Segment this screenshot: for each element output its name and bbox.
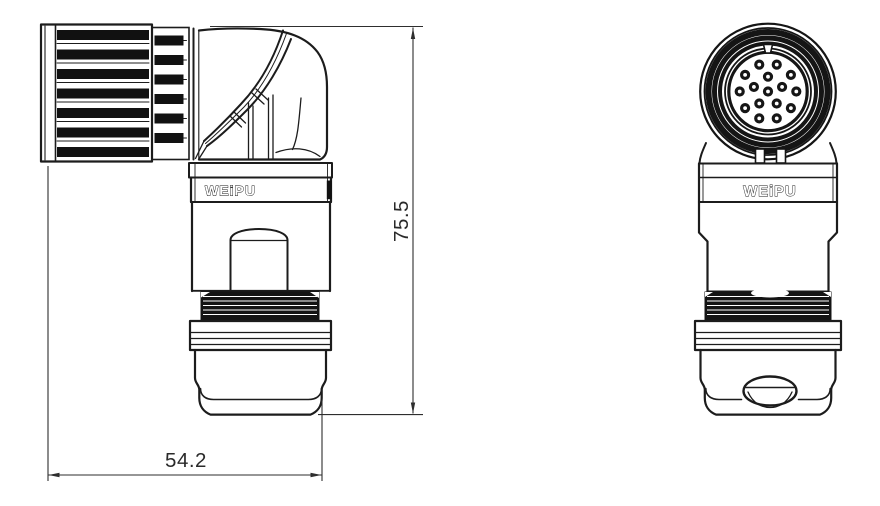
body-dome [231, 229, 288, 291]
band-notch [327, 181, 332, 200]
dim-width-label: 54.2 [165, 449, 207, 472]
weipu-logo-side: WEiPU [205, 182, 256, 198]
front-gland [701, 350, 836, 415]
dimension-width: 54.2 [48, 166, 322, 481]
coupling-nut [41, 25, 189, 162]
keying-notch [764, 45, 773, 54]
side-neck-bands: WEiPU [189, 163, 332, 202]
face-tab-right [777, 149, 786, 163]
connector-drawing: WEiPU [0, 0, 880, 506]
dimension-height: 75.5 [210, 27, 423, 415]
latch-strap [196, 31, 292, 160]
front-threads [705, 289, 831, 321]
technical-drawing-canvas: WEiPU [0, 0, 880, 506]
face-rings [700, 24, 836, 160]
collar-ribs [155, 36, 184, 144]
side-gland [195, 350, 326, 415]
side-threads [201, 292, 319, 321]
weipu-logo-front: WEiPU [743, 184, 797, 200]
side-view: WEiPU [41, 25, 332, 415]
front-body [699, 202, 837, 292]
front-neck-bands: WEiPU [699, 164, 837, 203]
front-view: WEiPU [695, 24, 841, 415]
side-flange [190, 321, 331, 350]
front-flange [695, 321, 841, 350]
gland-dimple [744, 377, 797, 408]
side-body [192, 202, 330, 291]
dim-height-label: 75.5 [390, 200, 413, 242]
nut-ribs [57, 30, 149, 157]
collar-rib-ends [184, 41, 187, 139]
face-tab-left [756, 149, 765, 163]
elbow-body [194, 28, 328, 159]
